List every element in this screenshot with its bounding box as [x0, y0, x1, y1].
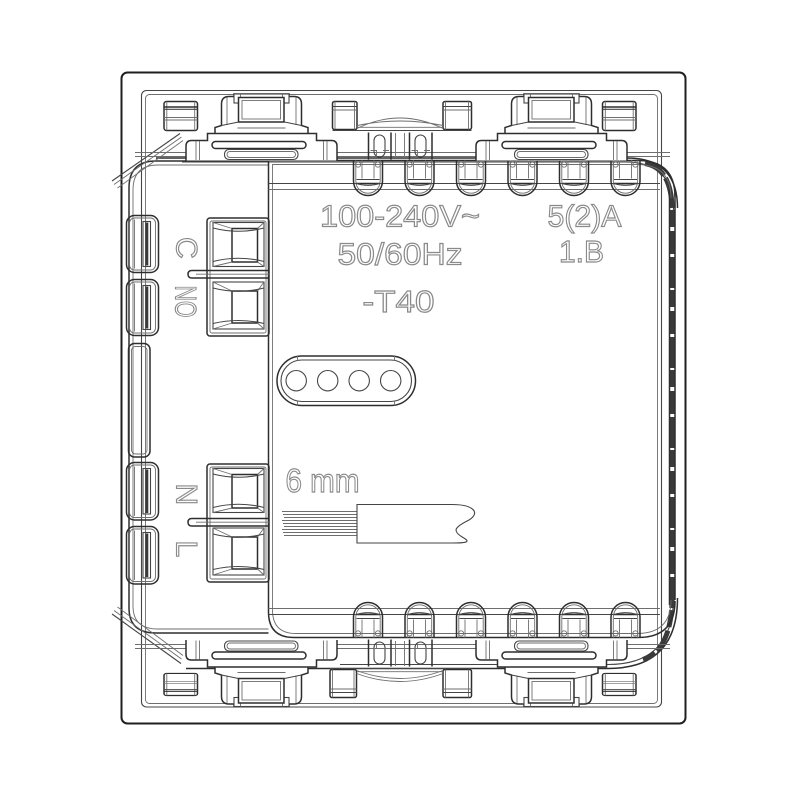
- svg-text:-T40: -T40: [363, 284, 435, 319]
- svg-text:N: N: [170, 484, 203, 506]
- svg-text:C: C: [170, 237, 203, 259]
- svg-text:100-240V~: 100-240V~: [320, 199, 480, 234]
- svg-text:6 mm: 6 mm: [286, 462, 360, 499]
- svg-text:1.B: 1.B: [559, 234, 604, 269]
- svg-text:NO: NO: [169, 286, 202, 318]
- svg-text:5(2)A: 5(2)A: [548, 199, 622, 234]
- svg-text:50/60Hz: 50/60Hz: [338, 237, 463, 272]
- svg-text:L: L: [170, 541, 203, 558]
